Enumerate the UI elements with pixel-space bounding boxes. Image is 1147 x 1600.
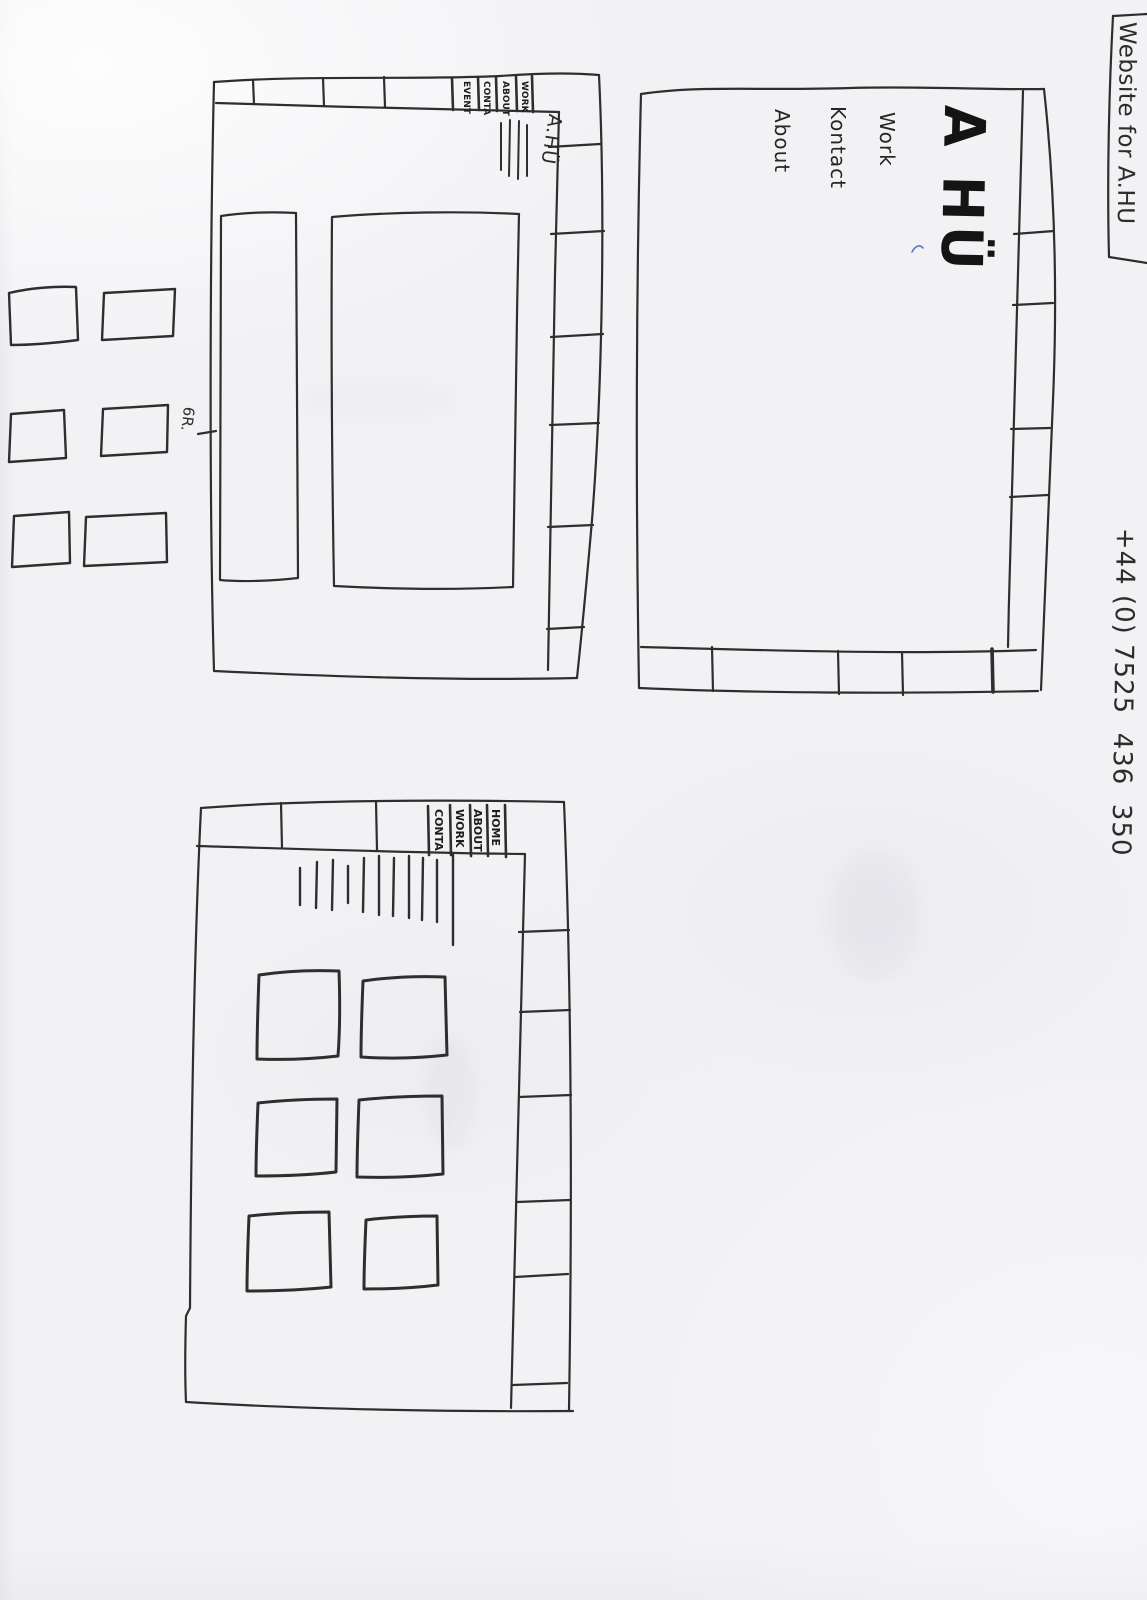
content-nav-item-contact: CONTA bbox=[478, 81, 494, 111]
text-hatch-lines bbox=[300, 855, 453, 945]
phone-number: +44 (0) 7525 436 350 bbox=[1105, 528, 1140, 888]
home-nav-item-kontact: Kontact bbox=[823, 106, 853, 198]
gallery-nav-item-contact: CONTA bbox=[428, 809, 448, 853]
sidebar-block bbox=[220, 212, 298, 581]
home-logo: A HÜ bbox=[917, 104, 1007, 276]
gallery-nav-item-about: ABOUT bbox=[469, 809, 486, 853]
content-nav-item-event: EVENT bbox=[456, 81, 476, 111]
margin-thumbnail-sketches bbox=[9, 287, 175, 567]
content-nav-item-work: WORK bbox=[516, 81, 531, 111]
gallery-nav-item-home: HOME bbox=[487, 809, 504, 853]
home-nav-item-about: About bbox=[767, 109, 797, 189]
home-nav-item-work: Work bbox=[872, 112, 902, 176]
gallery-thumbnails bbox=[247, 971, 447, 1291]
content-nav-item-about: ABOUT bbox=[496, 81, 514, 111]
note-box-title: Website for A.HU bbox=[1112, 22, 1140, 252]
text-placeholder-lines bbox=[501, 120, 527, 179]
gallery-nav-item-work: WORK bbox=[450, 809, 468, 853]
scanned-sketch-page: { "page": { "note_box_text": "Website fo… bbox=[0, 0, 1147, 1600]
gallery-wireframe-outline bbox=[185, 801, 573, 1412]
main-content-block bbox=[332, 212, 519, 588]
